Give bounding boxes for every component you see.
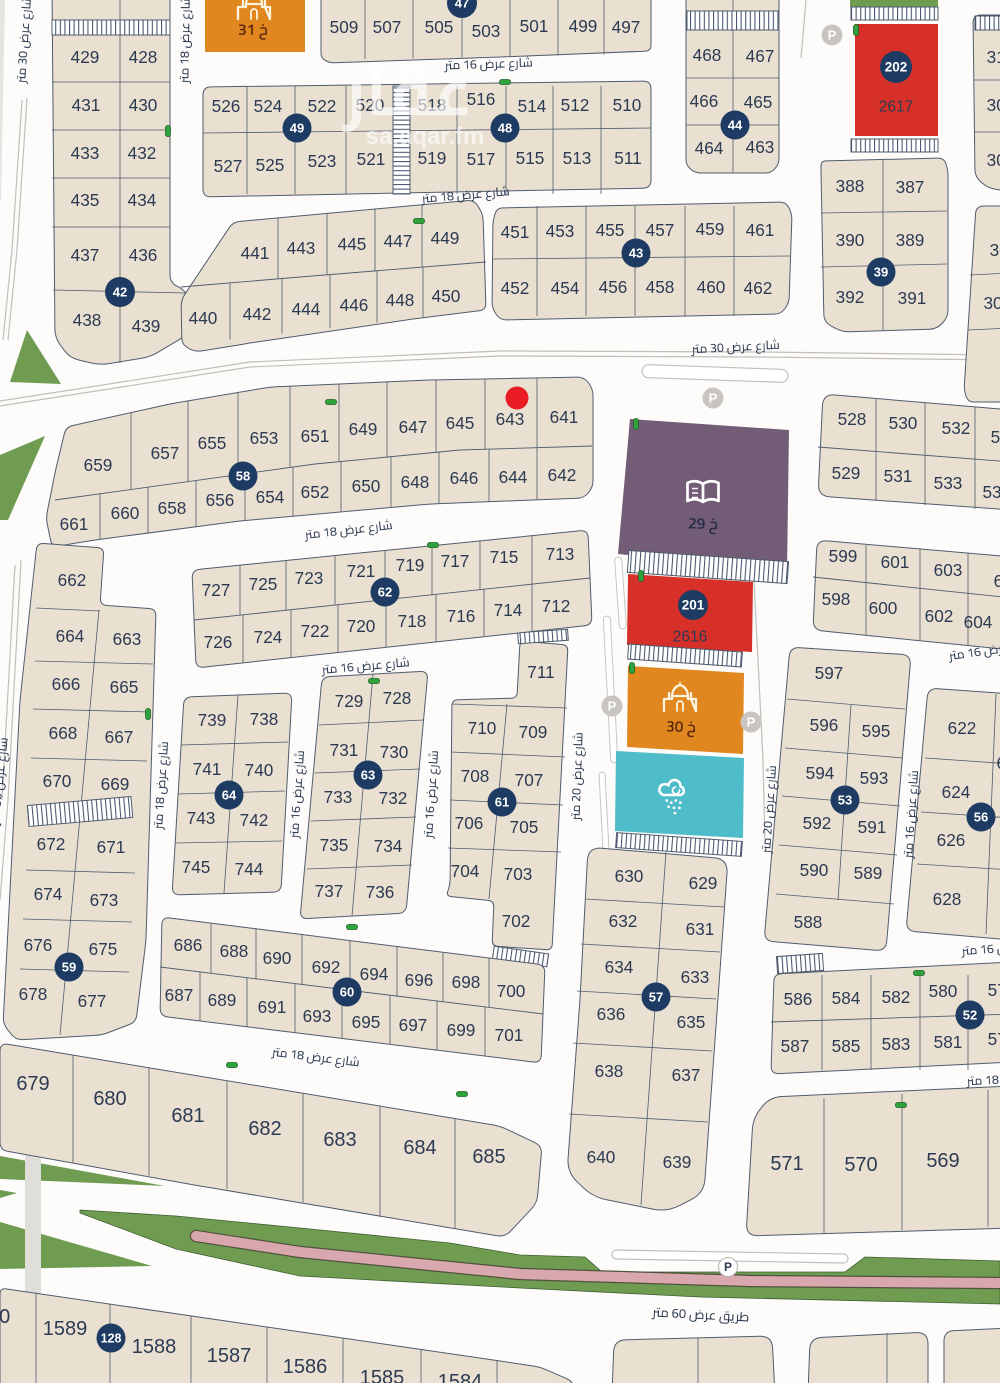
svg-text:698: 698 <box>452 972 481 992</box>
svg-text:690: 690 <box>263 948 292 968</box>
svg-text:460: 460 <box>697 277 726 297</box>
svg-text:692: 692 <box>312 957 341 977</box>
svg-text:651: 651 <box>301 426 330 446</box>
svg-text:521: 521 <box>357 149 386 169</box>
svg-text:446: 446 <box>340 295 369 315</box>
svg-text:P: P <box>608 699 617 714</box>
svg-text:465: 465 <box>744 92 773 112</box>
svg-text:447: 447 <box>384 231 413 251</box>
svg-text:716: 716 <box>447 606 476 626</box>
svg-text:466: 466 <box>690 91 719 111</box>
svg-text:674: 674 <box>34 884 63 904</box>
svg-text:434: 434 <box>128 190 157 210</box>
svg-text:637: 637 <box>672 1065 701 1085</box>
svg-text:468: 468 <box>693 45 722 65</box>
svg-text:505: 505 <box>425 17 454 37</box>
svg-text:43: 43 <box>629 246 643 261</box>
svg-text:sa.aqar.fm: sa.aqar.fm <box>366 123 485 150</box>
svg-text:727: 727 <box>202 580 231 600</box>
svg-text:440: 440 <box>189 308 218 328</box>
svg-text:1590: 1590 <box>0 1306 10 1328</box>
svg-text:718: 718 <box>398 611 427 631</box>
svg-text:570: 570 <box>844 1154 877 1176</box>
svg-text:510: 510 <box>613 95 642 115</box>
svg-text:666: 666 <box>52 674 81 694</box>
svg-text:42: 42 <box>113 285 127 300</box>
svg-text:706: 706 <box>455 813 484 833</box>
svg-text:738: 738 <box>250 709 279 729</box>
svg-text:624: 624 <box>942 782 971 802</box>
svg-text:722: 722 <box>301 621 330 641</box>
svg-text:720: 720 <box>347 616 376 636</box>
svg-text:526: 526 <box>212 96 241 116</box>
svg-text:512: 512 <box>561 95 590 115</box>
svg-text:529: 529 <box>832 463 861 483</box>
svg-text:680: 680 <box>93 1088 126 1110</box>
svg-text:667: 667 <box>105 727 134 747</box>
svg-text:683: 683 <box>323 1129 356 1151</box>
svg-text:622: 622 <box>948 718 977 738</box>
svg-text:691: 691 <box>258 997 287 1017</box>
svg-text:1586: 1586 <box>283 1356 328 1378</box>
svg-text:P: P <box>747 715 756 730</box>
svg-text:710: 710 <box>468 718 497 738</box>
svg-text:579: 579 <box>988 1029 1000 1049</box>
svg-text:743: 743 <box>187 808 216 828</box>
svg-text:201: 201 <box>682 598 705 613</box>
svg-text:464: 464 <box>695 138 724 158</box>
svg-text:686: 686 <box>174 935 203 955</box>
svg-text:641: 641 <box>550 407 579 427</box>
svg-text:58: 58 <box>236 469 250 484</box>
svg-text:453: 453 <box>546 221 575 241</box>
svg-text:525: 525 <box>256 155 285 175</box>
svg-text:52: 52 <box>963 1008 977 1023</box>
svg-text:442: 442 <box>243 304 272 324</box>
svg-text:650: 650 <box>352 476 381 496</box>
svg-text:699: 699 <box>447 1020 476 1040</box>
svg-text:605: 605 <box>994 571 1000 591</box>
svg-text:708: 708 <box>461 766 490 786</box>
svg-text:696: 696 <box>405 970 434 990</box>
svg-text:511: 511 <box>614 148 641 168</box>
svg-text:53: 53 <box>838 793 852 808</box>
svg-text:436: 436 <box>129 245 158 265</box>
svg-text:701: 701 <box>495 1025 524 1045</box>
svg-text:640: 640 <box>587 1147 616 1167</box>
svg-text:714: 714 <box>494 600 523 620</box>
svg-text:731: 731 <box>330 740 359 760</box>
svg-text:432: 432 <box>128 143 157 163</box>
svg-text:638: 638 <box>595 1061 624 1081</box>
svg-text:456: 456 <box>599 277 628 297</box>
svg-text:655: 655 <box>198 433 227 453</box>
svg-text:39: 39 <box>874 265 888 280</box>
svg-text:715: 715 <box>490 547 519 567</box>
svg-text:670: 670 <box>43 771 72 791</box>
svg-text:583: 583 <box>882 1034 911 1054</box>
svg-text:527: 527 <box>214 156 243 176</box>
svg-text:430: 430 <box>129 95 158 115</box>
svg-text:509: 509 <box>330 17 359 37</box>
svg-text:740: 740 <box>245 760 274 780</box>
svg-text:533: 533 <box>934 473 963 493</box>
svg-text:304: 304 <box>987 150 1000 170</box>
svg-text:499: 499 <box>569 16 598 36</box>
svg-text:459: 459 <box>696 219 725 239</box>
svg-text:391: 391 <box>898 288 927 308</box>
svg-text:717: 717 <box>441 551 470 571</box>
svg-text:128: 128 <box>101 1331 122 1345</box>
svg-text:435: 435 <box>71 190 100 210</box>
svg-text:730: 730 <box>380 742 409 762</box>
svg-text:497: 497 <box>612 17 641 37</box>
svg-text:582: 582 <box>882 987 911 1007</box>
svg-text:56: 56 <box>974 810 988 825</box>
svg-text:689: 689 <box>208 990 237 1010</box>
svg-text:524: 524 <box>254 96 283 116</box>
svg-text:1587: 1587 <box>207 1345 252 1367</box>
svg-text:682: 682 <box>248 1118 281 1140</box>
svg-text:735: 735 <box>320 835 349 855</box>
svg-text:652: 652 <box>301 482 330 502</box>
svg-text:648: 648 <box>401 472 430 492</box>
svg-text:580: 580 <box>929 981 958 1001</box>
svg-text:658: 658 <box>158 498 187 518</box>
svg-text:522: 522 <box>308 96 337 116</box>
svg-text:663: 663 <box>113 629 142 649</box>
svg-text:684: 684 <box>403 1137 436 1159</box>
svg-text:514: 514 <box>518 96 547 116</box>
svg-text:439: 439 <box>132 316 161 336</box>
svg-text:694: 694 <box>360 964 389 984</box>
svg-text:593: 593 <box>860 768 889 788</box>
svg-text:644: 644 <box>499 467 528 487</box>
svg-text:592: 592 <box>803 813 832 833</box>
svg-text:741: 741 <box>193 759 222 779</box>
svg-text:445: 445 <box>338 234 367 254</box>
svg-text:1585: 1585 <box>360 1367 405 1383</box>
svg-text:461: 461 <box>746 220 775 240</box>
svg-text:534: 534 <box>991 427 1000 447</box>
svg-text:736: 736 <box>366 882 395 902</box>
svg-text:671: 671 <box>97 837 126 857</box>
svg-text:444: 444 <box>292 299 321 319</box>
svg-text:452: 452 <box>501 278 530 298</box>
svg-text:62: 62 <box>996 753 1000 773</box>
svg-text:443: 443 <box>287 238 316 258</box>
svg-text:654: 654 <box>256 487 285 507</box>
svg-text:675: 675 <box>89 939 118 959</box>
svg-text:681: 681 <box>171 1105 204 1127</box>
svg-text:643: 643 <box>496 409 525 429</box>
svg-text:633: 633 <box>681 967 710 987</box>
svg-text:49: 49 <box>290 121 304 136</box>
svg-text:585: 585 <box>832 1036 861 1056</box>
svg-text:668: 668 <box>49 723 78 743</box>
svg-text:571: 571 <box>770 1153 803 1175</box>
svg-text:596: 596 <box>810 715 839 735</box>
svg-text:726: 726 <box>204 632 233 652</box>
svg-text:695: 695 <box>352 1012 381 1032</box>
svg-text:390: 390 <box>836 230 865 250</box>
svg-text:523: 523 <box>308 151 337 171</box>
svg-text:685: 685 <box>472 1146 505 1168</box>
svg-text:728: 728 <box>383 688 412 708</box>
svg-text:700: 700 <box>497 981 526 1001</box>
svg-text:707: 707 <box>515 770 544 790</box>
svg-text:515: 515 <box>516 148 545 168</box>
svg-text:679: 679 <box>16 1073 49 1095</box>
svg-text:30: 30 <box>983 293 1000 313</box>
svg-text:711: 711 <box>527 662 554 682</box>
svg-text:62: 62 <box>378 585 392 600</box>
svg-text:589: 589 <box>854 863 883 883</box>
svg-text:739: 739 <box>198 710 227 730</box>
svg-text:709: 709 <box>519 722 548 742</box>
svg-text:2617: 2617 <box>879 98 913 115</box>
svg-text:451: 451 <box>501 222 530 242</box>
svg-text:462: 462 <box>744 278 773 298</box>
svg-text:312: 312 <box>987 47 1000 67</box>
svg-text:467: 467 <box>746 46 775 66</box>
svg-text:530: 530 <box>889 413 918 433</box>
svg-text:389: 389 <box>896 230 925 250</box>
svg-text:601: 601 <box>881 552 910 572</box>
svg-text:659: 659 <box>84 455 113 475</box>
svg-text:673: 673 <box>90 890 119 910</box>
svg-text:569: 569 <box>926 1150 959 1172</box>
svg-text:57: 57 <box>649 990 663 1005</box>
svg-text:454: 454 <box>551 278 580 298</box>
svg-text:649: 649 <box>349 419 378 439</box>
svg-text:603: 603 <box>934 560 963 580</box>
svg-text:599: 599 <box>829 546 858 566</box>
svg-text:725: 725 <box>249 574 278 594</box>
svg-text:501: 501 <box>520 16 549 36</box>
svg-text:441: 441 <box>241 243 270 263</box>
svg-text:60: 60 <box>340 985 354 1000</box>
svg-text:678: 678 <box>19 984 48 1004</box>
svg-text:642: 642 <box>548 465 577 485</box>
svg-text:604: 604 <box>964 612 993 632</box>
svg-text:742: 742 <box>240 810 269 830</box>
svg-text:721: 721 <box>347 561 376 581</box>
svg-text:688: 688 <box>220 941 249 961</box>
svg-text:664: 664 <box>56 626 85 646</box>
svg-text:729: 729 <box>335 691 364 711</box>
svg-text:59: 59 <box>62 960 76 975</box>
svg-text:458: 458 <box>646 277 675 297</box>
svg-text:457: 457 <box>646 220 675 240</box>
svg-text:387: 387 <box>896 177 925 197</box>
svg-text:531: 531 <box>884 466 913 486</box>
svg-text:588: 588 <box>794 912 823 932</box>
svg-text:449: 449 <box>431 228 460 248</box>
svg-text:598: 598 <box>822 589 851 609</box>
svg-text:513: 513 <box>563 148 592 168</box>
svg-text:702: 702 <box>502 911 531 931</box>
svg-text:528: 528 <box>838 409 867 429</box>
svg-text:657: 657 <box>151 443 180 463</box>
svg-text:687: 687 <box>165 985 194 1005</box>
svg-text:594: 594 <box>806 763 835 783</box>
svg-text:703: 703 <box>504 864 533 884</box>
svg-text:734: 734 <box>374 836 403 856</box>
svg-text:503: 503 <box>472 21 501 41</box>
svg-text:48: 48 <box>498 121 512 136</box>
svg-text:662: 662 <box>58 570 87 590</box>
svg-text:300: 300 <box>990 240 1000 260</box>
svg-text:693: 693 <box>303 1006 332 1026</box>
svg-text:591: 591 <box>858 817 887 837</box>
svg-text:636: 636 <box>597 1004 626 1024</box>
svg-text:433: 433 <box>71 143 100 163</box>
svg-text:448: 448 <box>386 290 415 310</box>
svg-text:429: 429 <box>71 47 100 67</box>
svg-text:676: 676 <box>24 935 53 955</box>
svg-text:704: 704 <box>451 861 480 881</box>
svg-text:635: 635 <box>677 1012 706 1032</box>
svg-text:724: 724 <box>254 627 283 647</box>
svg-text:61: 61 <box>495 795 509 810</box>
svg-text:431: 431 <box>72 95 101 115</box>
svg-text:428: 428 <box>129 47 158 67</box>
svg-text:602: 602 <box>925 606 954 626</box>
svg-text:647: 647 <box>399 417 428 437</box>
svg-text:586: 586 <box>784 989 813 1009</box>
svg-text:437: 437 <box>71 245 100 265</box>
svg-text:517: 517 <box>467 149 496 169</box>
svg-text:712: 712 <box>542 596 571 616</box>
svg-text:737: 737 <box>315 881 344 901</box>
svg-text:653: 653 <box>250 428 279 448</box>
svg-text:438: 438 <box>73 310 102 330</box>
svg-text:597: 597 <box>815 663 844 683</box>
svg-text:626: 626 <box>937 830 966 850</box>
svg-text:2616: 2616 <box>673 628 707 645</box>
svg-text:628: 628 <box>933 889 962 909</box>
svg-text:634: 634 <box>605 957 634 977</box>
svg-text:519: 519 <box>418 148 447 168</box>
svg-text:719: 719 <box>396 555 425 575</box>
svg-text:631: 631 <box>686 919 715 939</box>
svg-text:53: 53 <box>982 482 1000 502</box>
svg-text:44: 44 <box>728 118 743 133</box>
svg-text:744: 744 <box>235 859 264 879</box>
svg-text:47: 47 <box>455 0 469 11</box>
svg-text:661: 661 <box>60 514 89 534</box>
svg-text:64: 64 <box>222 788 237 803</box>
svg-text:587: 587 <box>781 1036 810 1056</box>
svg-text:590: 590 <box>800 860 829 880</box>
svg-text:P: P <box>709 391 718 406</box>
svg-text:202: 202 <box>885 60 908 75</box>
svg-text:532: 532 <box>942 418 971 438</box>
svg-text:388: 388 <box>836 176 865 196</box>
svg-text:600: 600 <box>869 598 898 618</box>
svg-text:P: P <box>828 28 837 43</box>
svg-text:639: 639 <box>663 1152 692 1172</box>
svg-text:1589: 1589 <box>43 1318 88 1340</box>
svg-text:656: 656 <box>206 490 235 510</box>
svg-text:672: 672 <box>37 834 66 854</box>
svg-text:1584: 1584 <box>438 1371 483 1383</box>
svg-text:629: 629 <box>689 873 718 893</box>
svg-text:507: 507 <box>373 17 402 37</box>
svg-text:723: 723 <box>295 568 324 588</box>
svg-text:660: 660 <box>111 503 140 523</box>
svg-text:455: 455 <box>596 220 625 240</box>
svg-text:632: 632 <box>609 911 638 931</box>
svg-text:705: 705 <box>510 817 539 837</box>
svg-text:713: 713 <box>546 544 575 564</box>
svg-text:1588: 1588 <box>132 1336 177 1358</box>
svg-text:630: 630 <box>615 866 644 886</box>
svg-text:516: 516 <box>467 89 496 109</box>
svg-text:581: 581 <box>934 1032 963 1052</box>
svg-text:463: 463 <box>746 137 775 157</box>
svg-text:578: 578 <box>988 980 1000 1000</box>
svg-text:732: 732 <box>379 788 408 808</box>
svg-text:595: 595 <box>862 721 891 741</box>
svg-text:392: 392 <box>836 287 865 307</box>
svg-text:308: 308 <box>987 95 1000 115</box>
svg-text:584: 584 <box>832 988 861 1008</box>
svg-text:646: 646 <box>450 468 479 488</box>
svg-text:645: 645 <box>446 413 475 433</box>
svg-text:P: P <box>724 1260 732 1274</box>
svg-text:665: 665 <box>110 677 139 697</box>
svg-text:669: 669 <box>101 774 130 794</box>
svg-text:733: 733 <box>324 787 353 807</box>
svg-text:450: 450 <box>432 286 461 306</box>
svg-text:697: 697 <box>399 1015 428 1035</box>
svg-text:745: 745 <box>182 857 211 877</box>
svg-text:677: 677 <box>78 991 107 1011</box>
svg-text:63: 63 <box>361 768 375 783</box>
